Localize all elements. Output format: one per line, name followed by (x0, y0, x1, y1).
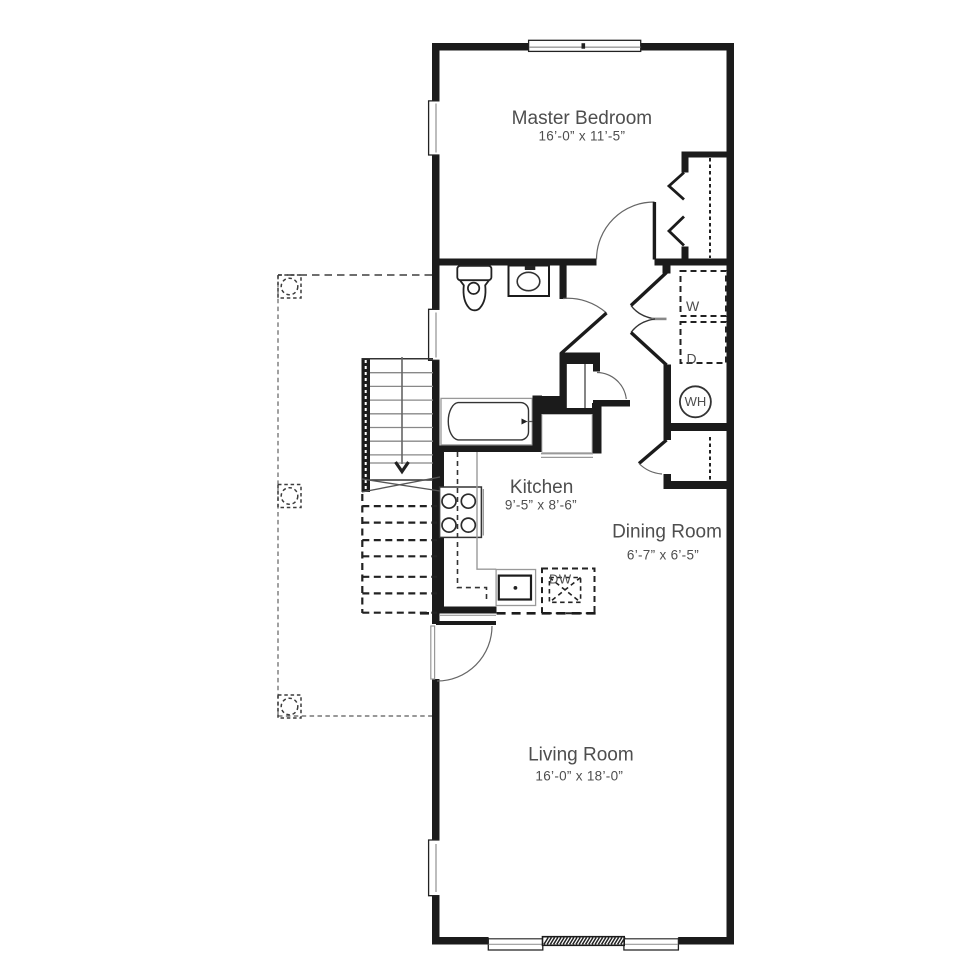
svg-text:16’-0” x 11’-5”: 16’-0” x 11’-5” (539, 128, 626, 143)
svg-text:DW: DW (549, 572, 572, 587)
svg-text:WH: WH (685, 394, 707, 409)
svg-text:16’-0” x 18’-0”: 16’-0” x 18’-0” (535, 769, 623, 784)
svg-text:D: D (687, 351, 697, 367)
svg-text:Master Bedroom: Master Bedroom (512, 108, 652, 129)
svg-text:9’-5” x 8’-6”: 9’-5” x 8’-6” (505, 498, 577, 513)
svg-text:Kitchen: Kitchen (510, 477, 573, 498)
svg-text:6’-7” x 6’-5”: 6’-7” x 6’-5” (627, 548, 699, 563)
svg-text:Living Room: Living Room (528, 745, 634, 766)
svg-text:W: W (686, 298, 700, 314)
svg-text:Dining Room: Dining Room (612, 522, 722, 543)
